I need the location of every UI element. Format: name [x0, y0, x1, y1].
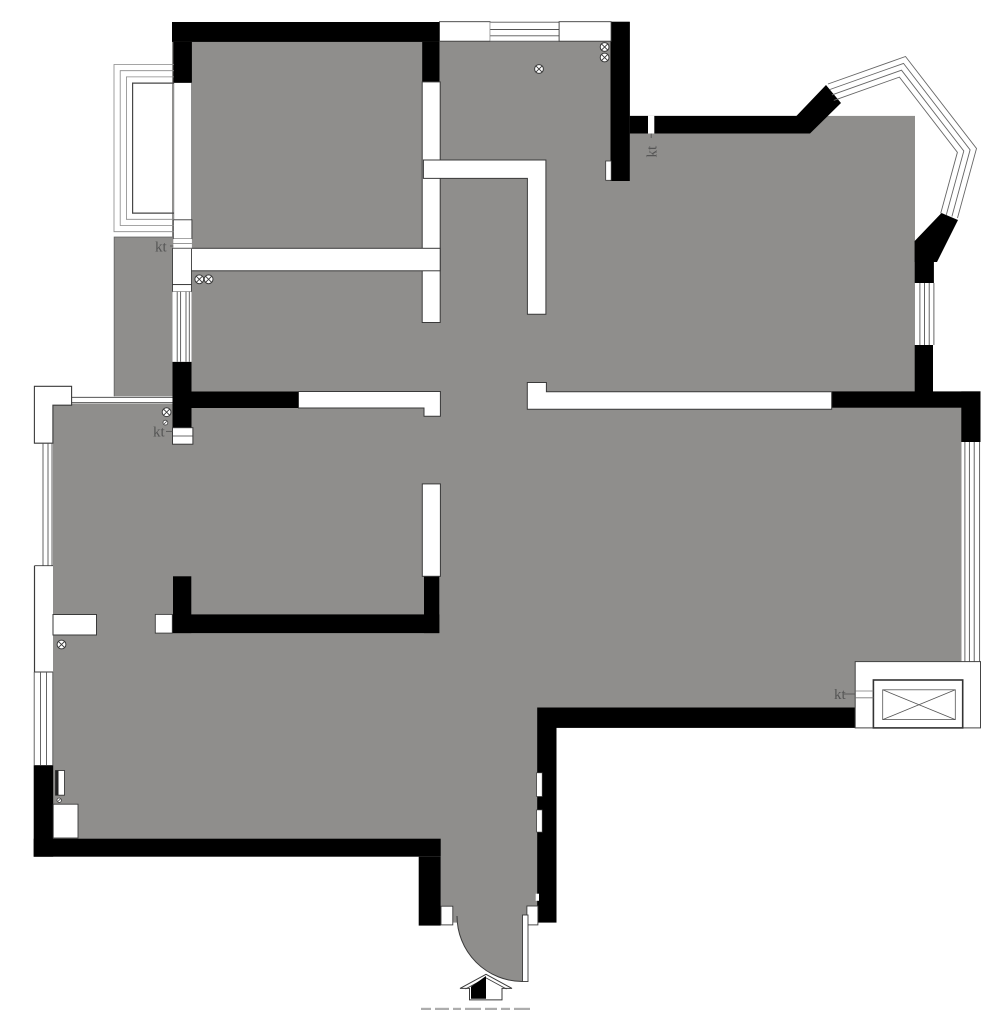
svg-text:kt: kt [155, 240, 168, 256]
svg-text:kt: kt [153, 425, 166, 441]
svg-text:kt: kt [645, 145, 661, 158]
svg-text:kt: kt [834, 687, 847, 703]
